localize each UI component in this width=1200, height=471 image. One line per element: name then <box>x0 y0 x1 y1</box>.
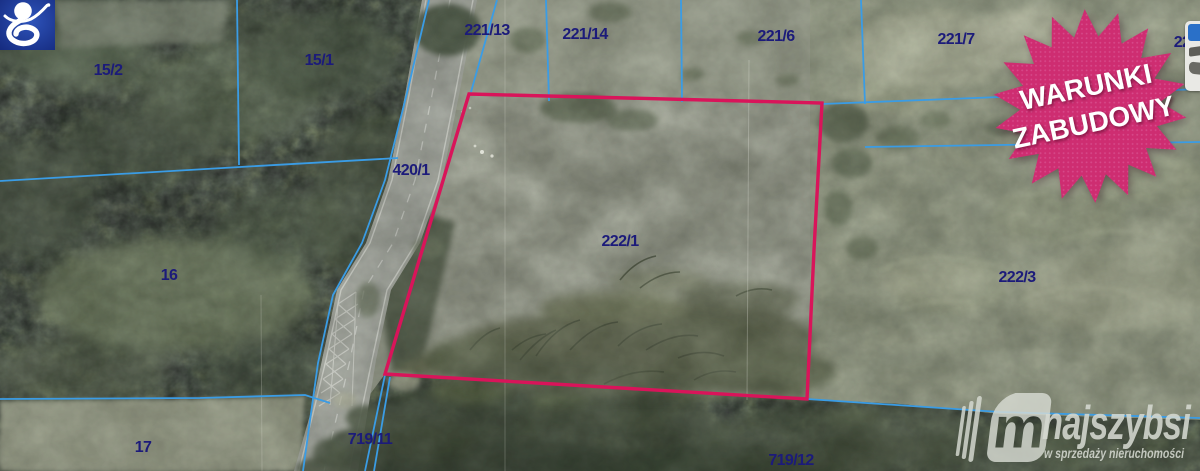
svg-text:najszybsi: najszybsi <box>1042 396 1191 449</box>
svg-text:w sprzedaży nieruchomości: w sprzedaży nieruchomości <box>1044 446 1184 461</box>
